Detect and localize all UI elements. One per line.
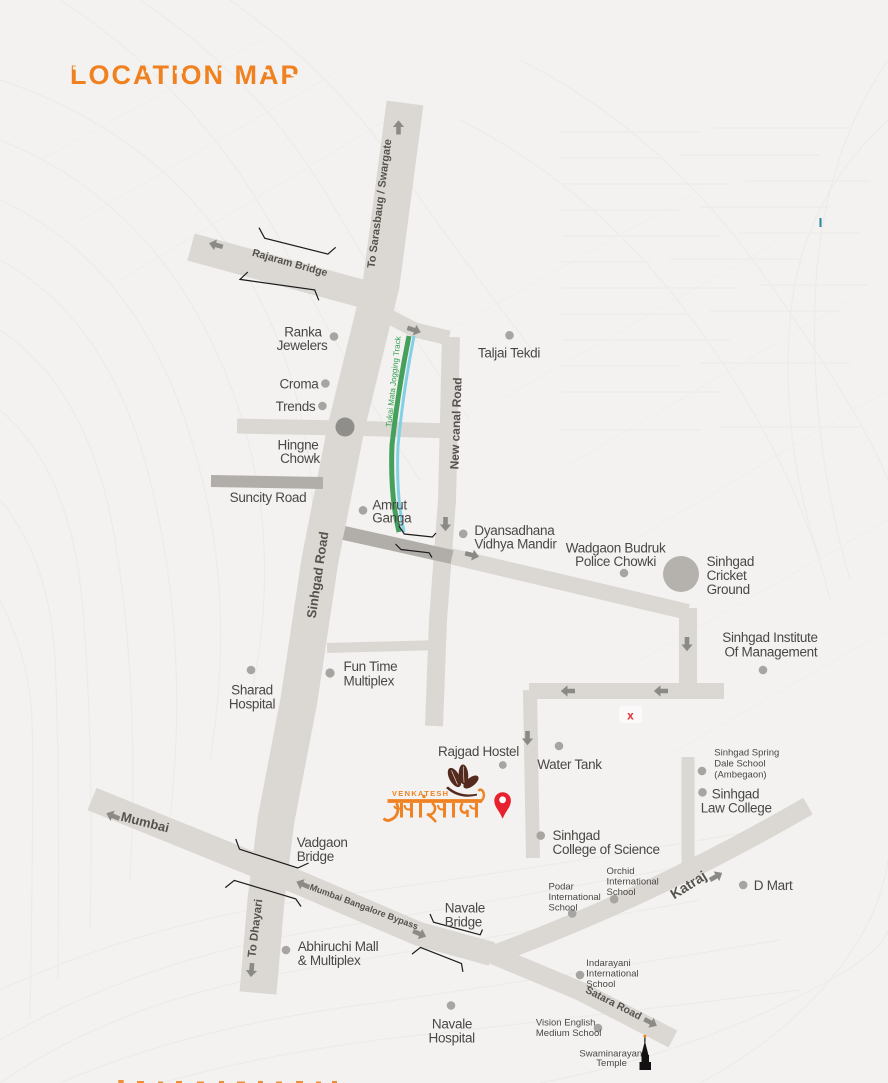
svg-text:College of Science: College of Science	[553, 842, 660, 857]
svg-text:Navale: Navale	[445, 901, 485, 916]
svg-text:Cricket: Cricket	[707, 568, 747, 583]
svg-text:Suncity Road: Suncity Road	[230, 490, 307, 505]
svg-text:Medium School: Medium School	[536, 1028, 601, 1039]
svg-text:Sharad: Sharad	[231, 683, 273, 698]
svg-text:Hospital: Hospital	[229, 697, 276, 712]
svg-text:Of Management: Of Management	[724, 645, 817, 660]
svg-text:Water Tank: Water Tank	[537, 757, 602, 772]
svg-text:International: International	[549, 892, 601, 903]
svg-text:Orchid: Orchid	[607, 866, 635, 877]
svg-text:Fun Time: Fun Time	[344, 659, 398, 674]
svg-text:Ganga: Ganga	[372, 511, 412, 526]
svg-text:x: x	[627, 709, 634, 723]
svg-text:Jewelers: Jewelers	[277, 338, 328, 353]
svg-text:Rajgad Hostel: Rajgad Hostel	[438, 744, 519, 759]
svg-text:& Multiplex: & Multiplex	[298, 953, 361, 968]
svg-text:Navale: Navale	[432, 1017, 472, 1032]
svg-text:School: School	[549, 903, 578, 914]
svg-text:Bridge: Bridge	[297, 849, 334, 864]
svg-text:Trends: Trends	[276, 399, 316, 414]
svg-text:Ground: Ground	[707, 582, 750, 597]
svg-text:Sinhgad: Sinhgad	[707, 554, 754, 569]
svg-text:Chowk: Chowk	[280, 451, 320, 466]
svg-text:Vision English: Vision English	[536, 1018, 596, 1029]
svg-text:(Ambegaon): (Ambegaon)	[714, 770, 766, 781]
svg-text:Sinhgad Spring: Sinhgad Spring	[714, 748, 779, 759]
svg-text:Abhiruchi Mall: Abhiruchi Mall	[298, 939, 379, 954]
svg-text:LOCATION MAP: LOCATION MAP	[70, 60, 300, 90]
svg-text:Law College: Law College	[701, 801, 772, 816]
svg-text:School: School	[586, 979, 615, 990]
svg-text:Podar: Podar	[549, 882, 574, 893]
svg-text:Dale School: Dale School	[714, 759, 765, 770]
svg-text:International: International	[586, 969, 638, 980]
svg-text:VENKATESH: VENKATESH	[392, 789, 449, 798]
svg-text:Indarayani: Indarayani	[586, 958, 630, 969]
svg-text:School: School	[607, 887, 636, 898]
svg-text:Hospital: Hospital	[429, 1031, 476, 1046]
svg-text:International: International	[607, 877, 659, 888]
svg-text:Police Chowki: Police Chowki	[575, 554, 656, 569]
svg-text:Taljai Tekdi: Taljai Tekdi	[478, 346, 540, 361]
svg-text:Croma: Croma	[279, 377, 319, 392]
svg-text:Bridge: Bridge	[445, 915, 482, 930]
svg-text:Vadgaon: Vadgaon	[297, 835, 348, 850]
svg-text:Sinhgad: Sinhgad	[712, 787, 759, 802]
svg-text:Temple: Temple	[596, 1058, 627, 1069]
svg-text:Multiplex: Multiplex	[344, 674, 395, 689]
svg-text:Sinhgad: Sinhgad	[553, 828, 600, 843]
svg-text:D Mart: D Mart	[754, 878, 793, 893]
svg-text:Sinhgad Institute: Sinhgad Institute	[722, 630, 817, 645]
svg-text:Vidhya Mandir: Vidhya Mandir	[474, 537, 557, 552]
